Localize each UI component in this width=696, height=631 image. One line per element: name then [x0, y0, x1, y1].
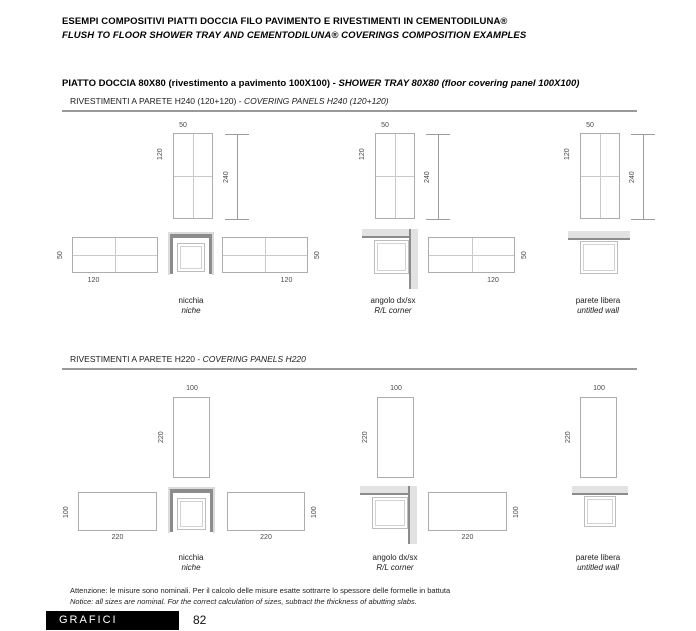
dim-panel-width: 50 [373, 121, 397, 130]
height-dimension-line [643, 135, 644, 219]
dim-plan-length: 220 [428, 533, 507, 542]
panel-joint-line [174, 176, 212, 177]
dim-plan-length: 120 [265, 276, 308, 285]
shower-tray-niche-plan [170, 489, 213, 532]
diagram-caption-it: parete libera [538, 296, 658, 306]
dim-panel-height: 220 [361, 424, 371, 450]
subtitle-h240-en: COVERING PANELS H240 (120+120) [244, 96, 389, 106]
tray-basin [580, 241, 618, 274]
diagram-caption-it: angolo dx/sx [333, 296, 453, 306]
dim-plan-length: 220 [227, 533, 305, 542]
catalog-page: ESEMPI COMPOSITIVI PIATTI DOCCIA FILO PA… [0, 0, 696, 631]
page-title-it: ESEMPI COMPOSITIVI PIATTI DOCCIA FILO PA… [62, 16, 508, 27]
panel-joint-line [429, 255, 514, 256]
tray-basin [177, 243, 205, 272]
dim-plan-depth: 50 [313, 244, 323, 266]
diagram-caption-it: nicchia [131, 553, 251, 563]
dim-panel-height: 220 [157, 424, 167, 450]
section-divider [62, 368, 637, 370]
diagram-caption-en: R/L corner [335, 563, 455, 573]
dim-plan-depth: 100 [512, 501, 522, 523]
dim-panel-width: 50 [578, 121, 602, 130]
dim-plan-length: 220 [78, 533, 157, 542]
section-title-en: SHOWER TRAY 80X80 (floor covering panel … [338, 78, 579, 89]
dim-total-height: 240 [423, 162, 433, 192]
page-number: 82 [193, 611, 206, 630]
subtitle-h240-it: RIVESTIMENTI A PARETE H240 (120+120) - [70, 96, 244, 106]
wall-panel-plan [227, 492, 305, 531]
wall-panel-plan [428, 237, 515, 273]
diagram-caption-en: R/L corner [333, 306, 453, 316]
wall-panel-plan [78, 492, 157, 531]
subtitle-h220: RIVESTIMENTI A PARETE H220 - COVERING PA… [70, 354, 306, 364]
section-title: PIATTO DOCCIA 80X80 (rivestimento a pavi… [62, 78, 579, 89]
diagram-caption-en: untitled wall [538, 563, 658, 573]
dim-panel-height: 220 [564, 424, 574, 450]
dimension-tick [631, 219, 655, 220]
dim-plan-depth: 50 [56, 244, 66, 266]
elevation-panel-diagram [173, 133, 213, 219]
wall-panel-plan [222, 237, 308, 273]
diagram-caption-en: niche [131, 306, 251, 316]
section-title-it: PIATTO DOCCIA 80X80 (rivestimento a pavi… [62, 78, 338, 89]
diagram-caption-it: parete libera [538, 553, 658, 563]
subtitle-h240: RIVESTIMENTI A PARETE H240 (120+120) - C… [70, 96, 389, 106]
dimension-tick [426, 219, 450, 220]
panel-joint-line [376, 176, 414, 177]
elevation-panel-diagram [377, 397, 414, 478]
footnote-it: Attenzione: le misure sono nominali. Per… [70, 586, 450, 595]
dim-panel-width: 100 [168, 384, 216, 393]
dim-panel-height: 120 [358, 141, 368, 167]
dim-panel-height: 120 [563, 141, 573, 167]
dimension-tick [225, 219, 249, 220]
tray-basin [177, 498, 206, 530]
elevation-panel-diagram [580, 133, 620, 219]
dim-plan-depth: 100 [62, 501, 72, 523]
shower-tray-corner-plan [360, 486, 417, 544]
shower-tray-corner-plan [362, 229, 418, 289]
footer-section-bar: GRAFICI [46, 611, 179, 630]
dim-plan-length: 120 [72, 276, 115, 285]
subtitle-h220-it: RIVESTIMENTI A PARETE H220 - [70, 354, 203, 364]
panel-joint-line [73, 255, 157, 256]
panel-joint-line [223, 255, 307, 256]
tray-basin [584, 496, 616, 527]
page-title-en: FLUSH TO FLOOR SHOWER TRAY AND CEMENTODI… [62, 30, 526, 41]
dim-plan-depth: 50 [520, 244, 530, 266]
dim-plan-depth: 100 [310, 501, 320, 523]
dim-plan-length: 120 [471, 276, 515, 285]
shower-tray-wall-plan [572, 486, 628, 528]
dim-panel-height: 120 [156, 141, 166, 167]
diagram-caption-it: angolo dx/sx [335, 553, 455, 563]
tray-basin [372, 497, 408, 529]
wall-band-right [409, 229, 418, 289]
panel-joint-line [581, 176, 619, 177]
elevation-panel-diagram [173, 397, 210, 478]
shower-tray-niche-plan [170, 234, 212, 274]
wall-band-top [568, 231, 630, 240]
shower-tray-wall-plan [568, 231, 630, 275]
diagram-caption-en: niche [131, 563, 251, 573]
footer-section-label: GRAFICI [46, 611, 179, 630]
dim-total-height: 240 [628, 162, 638, 192]
diagram-caption-en: untitled wall [538, 306, 658, 316]
wall-band-right [408, 486, 417, 544]
elevation-panel-diagram [375, 133, 415, 219]
dim-panel-width: 100 [372, 384, 420, 393]
diagram-caption-it: nicchia [131, 296, 251, 306]
footnote-en: Notice: all sizes are nominal. For the c… [70, 597, 417, 606]
dim-panel-width: 100 [575, 384, 623, 393]
elevation-panel-diagram [580, 397, 617, 478]
wall-panel-plan [72, 237, 158, 273]
dim-total-height: 240 [222, 162, 232, 192]
wall-panel-plan [428, 492, 507, 531]
subtitle-h220-en: COVERING PANELS H220 [203, 354, 306, 364]
section-divider [62, 110, 637, 112]
tray-basin [374, 240, 409, 274]
height-dimension-line [237, 135, 238, 219]
dim-panel-width: 50 [171, 121, 195, 130]
height-dimension-line [438, 135, 439, 219]
wall-band-top [572, 486, 628, 495]
